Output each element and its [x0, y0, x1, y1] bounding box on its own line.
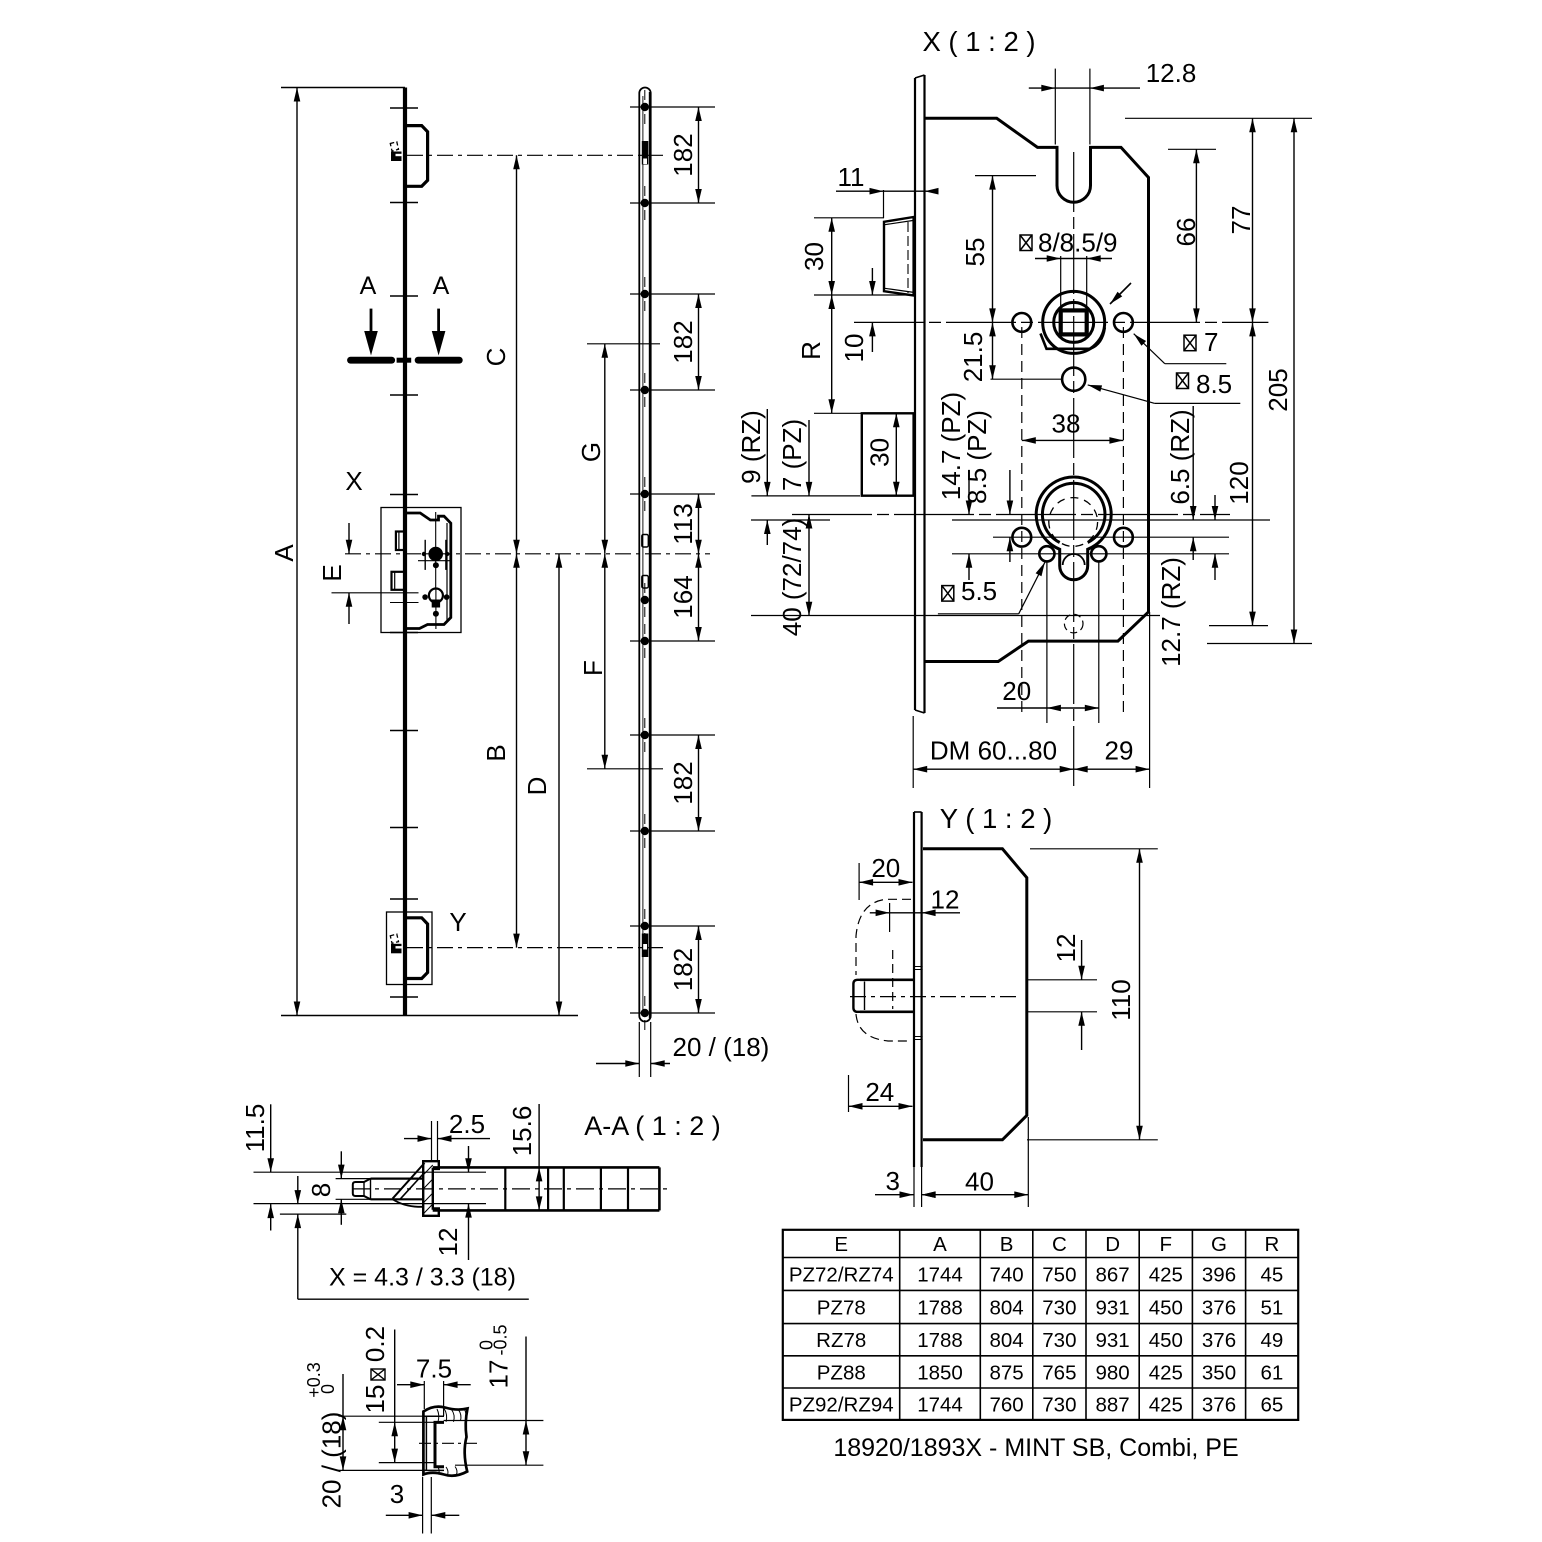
- svg-text:D: D: [522, 777, 552, 796]
- svg-text:0: 0: [318, 1384, 338, 1394]
- svg-text:15.6: 15.6: [507, 1106, 537, 1157]
- svg-text:24: 24: [865, 1077, 894, 1107]
- svg-text:E: E: [317, 564, 347, 581]
- svg-text:396: 396: [1202, 1264, 1236, 1287]
- svg-text:1744: 1744: [917, 1393, 963, 1416]
- svg-text:12: 12: [1051, 934, 1081, 963]
- svg-text:425: 425: [1149, 1361, 1183, 1384]
- svg-text:113: 113: [668, 503, 698, 544]
- svg-text:A: A: [933, 1233, 947, 1256]
- svg-text:C: C: [481, 348, 511, 367]
- svg-text:730: 730: [1042, 1329, 1076, 1352]
- svg-text:20 / (18): 20 / (18): [673, 1032, 770, 1062]
- svg-text:1744: 1744: [917, 1264, 963, 1287]
- svg-text:12.8: 12.8: [1146, 58, 1197, 88]
- svg-text:29: 29: [1105, 736, 1134, 766]
- svg-text:RZ78: RZ78: [816, 1329, 866, 1352]
- svg-text:40: 40: [965, 1167, 994, 1197]
- svg-text:Y ( 1 : 2 ): Y ( 1 : 2 ): [940, 803, 1053, 834]
- svg-text:D: D: [1105, 1233, 1120, 1256]
- svg-text:20: 20: [871, 853, 900, 883]
- svg-text:0.2: 0.2: [360, 1326, 390, 1362]
- svg-text:A: A: [360, 272, 377, 300]
- svg-text:376: 376: [1202, 1297, 1236, 1320]
- svg-text:55: 55: [960, 238, 990, 267]
- svg-text:376: 376: [1202, 1329, 1236, 1352]
- svg-text:A: A: [433, 272, 450, 300]
- svg-text:20: 20: [1002, 676, 1031, 706]
- svg-text:X ( 1 : 2 ): X ( 1 : 2 ): [922, 26, 1035, 57]
- svg-text:182: 182: [668, 761, 698, 804]
- svg-text:425: 425: [1149, 1264, 1183, 1287]
- svg-text:730: 730: [1042, 1297, 1076, 1320]
- svg-text:40 (72/74): 40 (72/74): [777, 518, 807, 637]
- svg-text:-0.5: -0.5: [491, 1324, 511, 1355]
- svg-text:205: 205: [1263, 368, 1293, 411]
- svg-text:7.5: 7.5: [416, 1354, 452, 1384]
- svg-text:120: 120: [1224, 461, 1254, 504]
- svg-text:20 / (18): 20 / (18): [316, 1412, 346, 1509]
- svg-text:X: X: [345, 466, 362, 496]
- svg-text:F: F: [578, 660, 608, 676]
- svg-text:7 (PZ): 7 (PZ): [777, 419, 807, 491]
- svg-text:760: 760: [989, 1393, 1023, 1416]
- svg-text:8/8.5/9: 8/8.5/9: [1038, 228, 1118, 258]
- svg-text:E: E: [834, 1233, 848, 1256]
- svg-text:931: 931: [1095, 1329, 1129, 1352]
- svg-text:350: 350: [1202, 1361, 1236, 1384]
- svg-text:C: C: [1052, 1233, 1067, 1256]
- svg-text:12.7 (RZ): 12.7 (RZ): [1156, 557, 1186, 667]
- svg-text:1788: 1788: [917, 1297, 963, 1320]
- svg-text:450: 450: [1149, 1329, 1183, 1352]
- svg-text:12: 12: [433, 1228, 463, 1257]
- svg-text:3: 3: [885, 1166, 899, 1196]
- svg-text:PZ88: PZ88: [817, 1361, 866, 1384]
- svg-text:B: B: [481, 744, 511, 761]
- svg-text:F: F: [1160, 1233, 1173, 1256]
- svg-text:980: 980: [1095, 1361, 1129, 1384]
- svg-text:G: G: [1211, 1233, 1227, 1256]
- svg-text:6.5 (RZ): 6.5 (RZ): [1165, 409, 1195, 504]
- svg-text:11: 11: [838, 162, 865, 192]
- svg-text:804: 804: [989, 1297, 1023, 1320]
- svg-text:PZ72/RZ74: PZ72/RZ74: [789, 1264, 894, 1287]
- svg-text:867: 867: [1095, 1264, 1129, 1287]
- svg-text:45: 45: [1260, 1264, 1283, 1287]
- svg-text:887: 887: [1095, 1393, 1129, 1416]
- svg-text:11.5: 11.5: [240, 1104, 270, 1153]
- svg-text:A: A: [269, 544, 299, 562]
- svg-text:182: 182: [668, 948, 698, 991]
- svg-text:8.5 (PZ): 8.5 (PZ): [962, 410, 992, 504]
- svg-text:17: 17: [484, 1360, 514, 1389]
- svg-text:B: B: [1000, 1233, 1014, 1256]
- svg-text:30: 30: [799, 242, 829, 271]
- svg-text:A-A ( 1 : 2 ): A-A ( 1 : 2 ): [584, 1111, 721, 1141]
- svg-text:750: 750: [1042, 1264, 1076, 1287]
- svg-text:65: 65: [1260, 1393, 1283, 1416]
- svg-text:9 (RZ): 9 (RZ): [736, 410, 766, 484]
- svg-text:R: R: [796, 341, 826, 360]
- svg-text:15: 15: [360, 1385, 390, 1414]
- svg-text:77: 77: [1226, 206, 1256, 235]
- svg-text:765: 765: [1042, 1361, 1076, 1384]
- svg-text:1850: 1850: [917, 1361, 963, 1384]
- svg-text:730: 730: [1042, 1393, 1076, 1416]
- svg-text:PZ78: PZ78: [817, 1297, 866, 1320]
- svg-text:12: 12: [931, 885, 960, 915]
- svg-text:110: 110: [1106, 979, 1136, 1020]
- svg-text:DM 60...80: DM 60...80: [930, 736, 1057, 766]
- svg-text:10: 10: [839, 334, 869, 363]
- svg-text:66: 66: [1171, 218, 1201, 247]
- svg-text:182: 182: [668, 320, 698, 363]
- svg-text:3: 3: [390, 1479, 404, 1509]
- svg-text:61: 61: [1260, 1361, 1283, 1384]
- svg-text:182: 182: [668, 133, 698, 176]
- svg-text:5.5: 5.5: [961, 576, 997, 606]
- svg-text:30: 30: [864, 438, 894, 467]
- svg-text:875: 875: [989, 1361, 1023, 1384]
- svg-text:450: 450: [1149, 1297, 1183, 1320]
- svg-text:8.5: 8.5: [1196, 369, 1232, 399]
- svg-text:38: 38: [1052, 409, 1081, 439]
- svg-text:Y: Y: [449, 907, 466, 937]
- svg-text:740: 740: [989, 1264, 1023, 1287]
- svg-text:51: 51: [1260, 1297, 1283, 1320]
- svg-text:804: 804: [989, 1329, 1023, 1352]
- svg-text:1788: 1788: [917, 1329, 963, 1352]
- svg-text:164: 164: [668, 575, 698, 618]
- svg-text:PZ92/RZ94: PZ92/RZ94: [789, 1393, 894, 1416]
- svg-text:376: 376: [1202, 1393, 1236, 1416]
- svg-text:G: G: [576, 442, 606, 462]
- svg-text:931: 931: [1095, 1297, 1129, 1320]
- svg-text:21.5: 21.5: [958, 332, 988, 383]
- svg-text:18920/1893X - MINT SB, Combi,: 18920/1893X - MINT SB, Combi, PE: [833, 1434, 1238, 1462]
- svg-text:7: 7: [1204, 327, 1218, 357]
- svg-text:X = 4.3 / 3.3 (18): X = 4.3 / 3.3 (18): [329, 1264, 516, 1292]
- svg-text:2.5: 2.5: [449, 1109, 485, 1139]
- svg-text:8: 8: [306, 1183, 336, 1197]
- svg-text:R: R: [1264, 1233, 1279, 1256]
- svg-text:425: 425: [1149, 1393, 1183, 1416]
- svg-text:49: 49: [1260, 1329, 1283, 1352]
